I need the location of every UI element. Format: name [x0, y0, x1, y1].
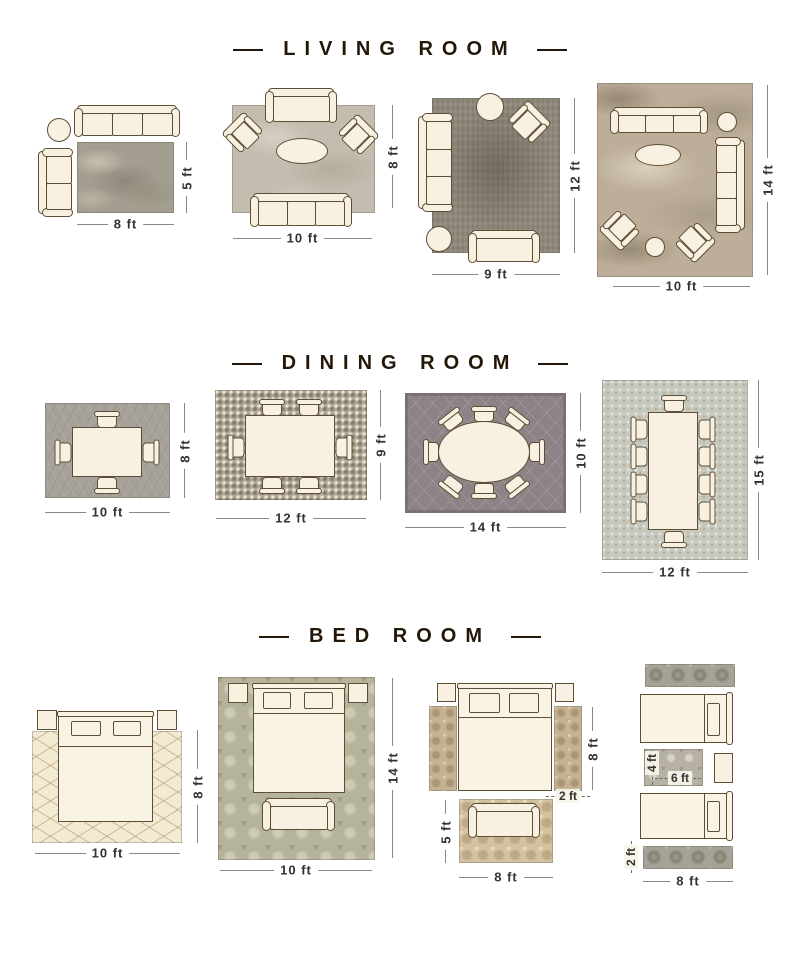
height-dimension: 9 ft [372, 390, 389, 500]
width-dimension-label: 10 ft [86, 846, 130, 861]
dining-chair [297, 477, 321, 494]
height-dimension: 10 ft [572, 393, 589, 513]
runner-rug [645, 664, 735, 687]
width-dimension-label: 10 ft [281, 231, 325, 246]
dining-table [648, 412, 698, 530]
runner-width-dimension: 8 ft [643, 873, 733, 890]
sofa [250, 193, 352, 227]
title-dash [537, 49, 567, 51]
dining-chair [631, 473, 648, 497]
height-dimension-label: 15 ft [751, 448, 766, 492]
dining-chair [631, 418, 648, 442]
height-dimension: 14 ft [384, 678, 401, 858]
height-dimension: 14 ft [759, 85, 776, 275]
nightstand [157, 710, 177, 730]
height-dimension: 8 ft [384, 105, 401, 208]
ottoman-round [426, 226, 452, 252]
section-title-text: BED ROOM [309, 625, 491, 648]
side-table-round [476, 93, 504, 121]
sofa [715, 137, 745, 233]
bench [262, 798, 335, 831]
title-dash [259, 636, 289, 638]
dining-chair [699, 473, 716, 497]
side-table-round [47, 118, 71, 142]
width-dimension: 10 ft [613, 278, 750, 295]
loveseat [265, 88, 337, 123]
bed [253, 683, 345, 793]
width-dimension: 12 ft [602, 564, 748, 581]
rug [77, 142, 174, 213]
dining-chair [336, 436, 353, 460]
height-dimension-label: 8 ft [177, 433, 192, 469]
coffee-table-oval [276, 138, 328, 164]
width-dimension: 14 ft [405, 519, 566, 536]
rug-width-dimension: 8 ft [459, 869, 553, 886]
width-dimension: 10 ft [35, 845, 180, 862]
width-dimension: 12 ft [216, 510, 366, 527]
width-dimension: 10 ft [233, 230, 372, 247]
dining-table [72, 427, 142, 477]
bed [58, 711, 153, 822]
nightstand [437, 683, 456, 702]
nightstand [714, 753, 733, 783]
width-dimension-label: 10 ft [660, 279, 704, 294]
width-dimension: 9 ft [432, 266, 560, 283]
loveseat [468, 230, 540, 263]
bench [468, 803, 540, 838]
width-dimension: 10 ft [220, 862, 372, 879]
dining-chair [662, 395, 686, 412]
width-dimension: 8 ft [77, 216, 174, 233]
dining-chair [472, 483, 496, 499]
runner-width-dimension-label: 8 ft [670, 874, 706, 889]
sofa [418, 113, 453, 212]
dining-chair [143, 441, 160, 465]
title-dash [511, 636, 541, 638]
dining-chair [260, 477, 284, 494]
coffee-table-oval [635, 144, 681, 166]
height-dimension-label: 10 ft [573, 431, 588, 475]
width-dimension: 10 ft [45, 504, 170, 521]
small-rug-height-label: 4 ft [645, 751, 659, 775]
rug-height-dimension-label: 5 ft [438, 814, 453, 850]
title-dash [538, 363, 568, 365]
dining-chair [297, 399, 321, 416]
dining-chair [228, 436, 245, 460]
chaise [38, 148, 73, 217]
dining-chair [699, 500, 716, 524]
dining-chair [260, 399, 284, 416]
runner-height-label: 2 ft [624, 845, 638, 869]
height-dimension-label: 9 ft [373, 427, 388, 463]
title-dash [233, 49, 263, 51]
bed [458, 683, 552, 791]
section-title-dining-room: DINING ROOM [0, 352, 800, 375]
runner-rug [554, 706, 582, 791]
width-dimension-label: 14 ft [464, 520, 508, 535]
dining-chair [699, 418, 716, 442]
width-dimension-label: 12 ft [269, 511, 313, 526]
twin-bed [640, 694, 733, 743]
twin-bed [640, 793, 733, 839]
height-dimension-label: 5 ft [179, 160, 194, 196]
section-title-bed-room: BED ROOM [0, 625, 800, 648]
runner-rug [643, 846, 733, 869]
dining-chair [95, 477, 119, 494]
ottoman-round [645, 237, 665, 257]
dining-chair [699, 445, 716, 469]
dining-chair [529, 440, 545, 464]
height-dimension-label: 12 ft [567, 154, 582, 198]
height-dimension-label: 8 ft [385, 139, 400, 175]
dining-table [245, 415, 335, 477]
dining-chair [662, 531, 686, 548]
dining-chair [423, 440, 439, 464]
dining-chair [631, 500, 648, 524]
rug-height-dimension: 5 ft [437, 800, 454, 863]
nightstand [348, 683, 368, 703]
width-dimension-label: 9 ft [478, 267, 514, 282]
rug-width-dimension-label: 8 ft [488, 870, 524, 885]
height-dimension-label: 8 ft [190, 769, 205, 805]
section-title-text: DINING ROOM [282, 352, 519, 375]
runner-rug [429, 706, 457, 791]
rug-size-guide: LIVING ROOM 8 ft 5 ft 10 ft 8 ft [0, 0, 800, 978]
width-dimension-label: 8 ft [108, 217, 144, 232]
bed-height-dimension-label: 8 ft [585, 731, 600, 767]
width-dimension-label: 10 ft [274, 863, 318, 878]
height-dimension: 15 ft [750, 380, 767, 560]
height-dimension: 8 ft [189, 730, 206, 843]
dining-chair [472, 406, 496, 422]
dining-chair [95, 411, 119, 428]
height-dimension-label: 14 ft [760, 158, 775, 202]
side-table-round [717, 112, 737, 132]
nightstand [228, 683, 248, 703]
dining-chair [55, 441, 72, 465]
height-dimension: 12 ft [566, 98, 583, 253]
small-rug-width-label: 6 ft [668, 771, 692, 785]
nightstand [37, 710, 57, 730]
sofa [610, 107, 708, 134]
dining-chair [631, 445, 648, 469]
nightstand [555, 683, 574, 702]
width-dimension-label: 10 ft [86, 505, 130, 520]
sofa [74, 105, 180, 137]
height-dimension-label: 14 ft [385, 746, 400, 790]
width-dimension-label: 12 ft [653, 565, 697, 580]
height-dimension: 5 ft [178, 142, 195, 213]
title-dash [232, 363, 262, 365]
bed-height-dimension: 8 ft [584, 707, 601, 790]
runner-width-label: 2 ft [556, 789, 580, 803]
height-dimension: 8 ft [176, 403, 193, 498]
section-title-living-room: LIVING ROOM [0, 38, 800, 61]
section-title-text: LIVING ROOM [283, 38, 516, 61]
